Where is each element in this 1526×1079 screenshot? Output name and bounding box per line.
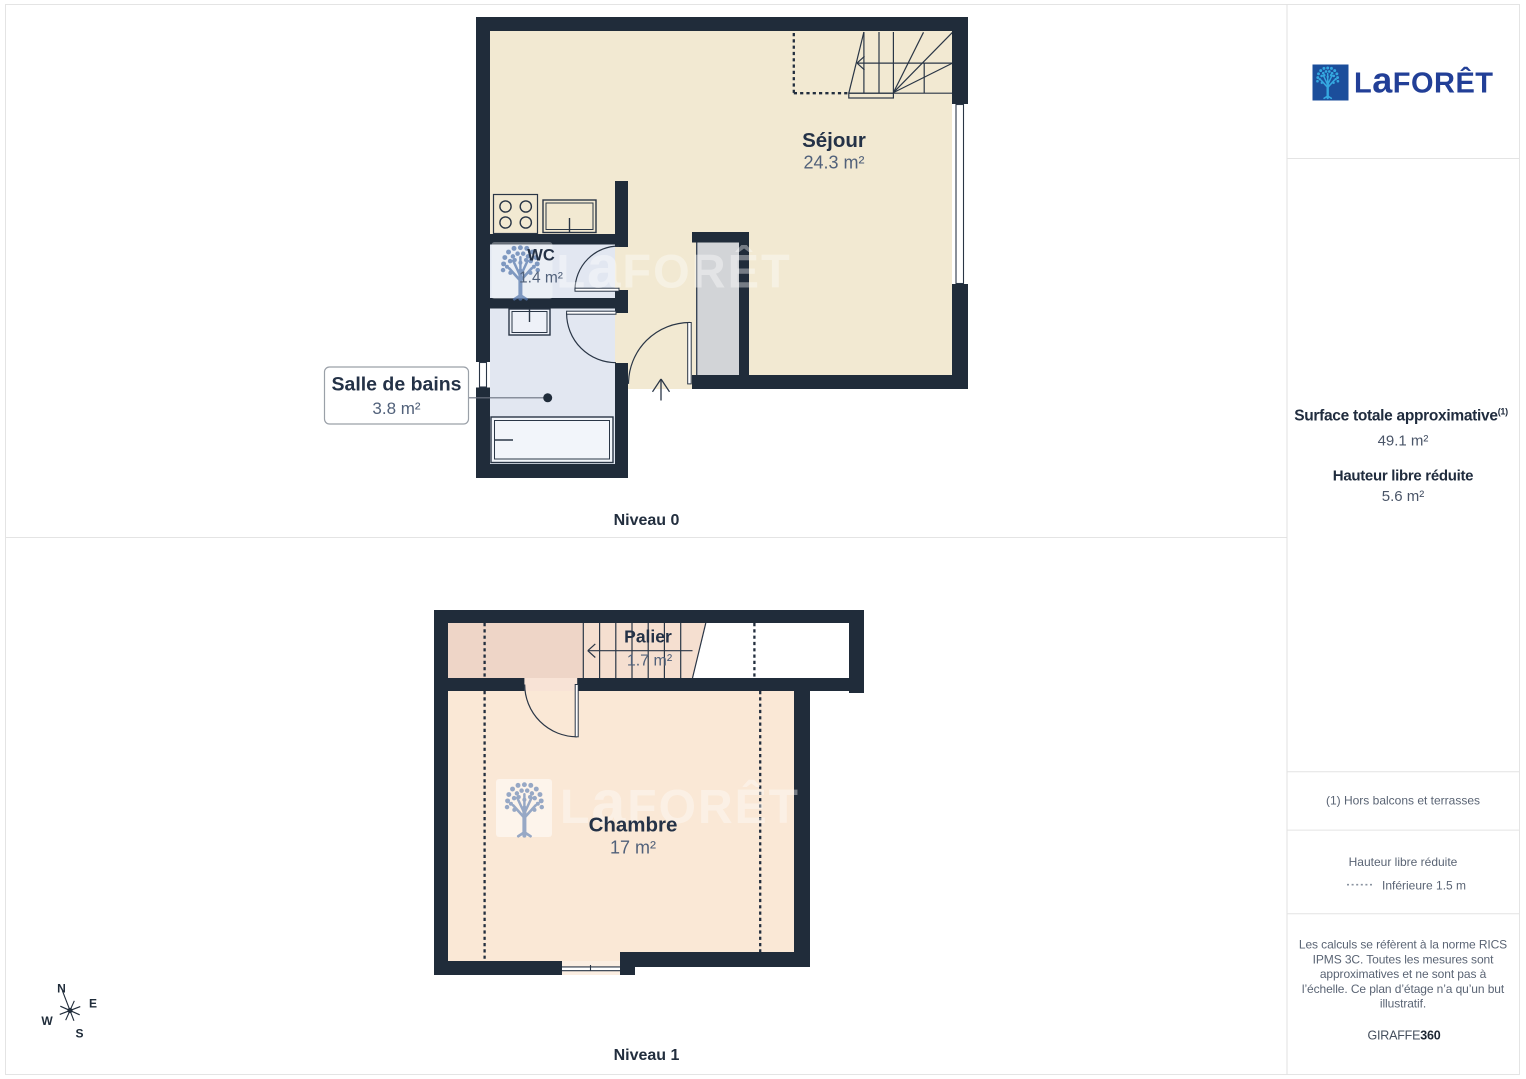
svg-text:Chambre: Chambre [589, 814, 678, 837]
svg-text:Surface totale approximative(1: Surface totale approximative(1) [1294, 407, 1508, 425]
svg-text:49.1 m²: 49.1 m² [1378, 433, 1429, 450]
svg-text:(1) Hors balcons et terrasses: (1) Hors balcons et terrasses [1326, 794, 1480, 808]
svg-text:Inférieure 1.5 m: Inférieure 1.5 m [1382, 879, 1466, 893]
svg-text:Séjour: Séjour [802, 129, 866, 152]
svg-text:17 m²: 17 m² [610, 838, 656, 858]
svg-text:N: N [57, 982, 66, 996]
svg-text:Hauteur libre réduite: Hauteur libre réduite [1349, 855, 1458, 869]
svg-text:Salle de bains: Salle de bains [331, 374, 461, 396]
svg-text:Niveau 1: Niveau 1 [614, 1047, 680, 1064]
svg-text:5.6 m²: 5.6 m² [1382, 488, 1425, 505]
svg-text:Les calculs se réfèrent à la n: Les calculs se réfèrent à la norme RICS [1299, 938, 1507, 952]
svg-text:W: W [41, 1014, 53, 1028]
svg-text:3.8 m²: 3.8 m² [372, 399, 421, 418]
svg-text:approximatives et ne sont pas: approximatives et ne sont pas à [1320, 967, 1487, 981]
svg-text:WC: WC [527, 247, 555, 265]
svg-text:1.7 m²: 1.7 m² [627, 653, 673, 670]
svg-text:Palier: Palier [624, 627, 672, 647]
svg-text:E: E [89, 997, 97, 1011]
svg-text:illustratif.: illustratif. [1380, 997, 1426, 1011]
svg-text:24.3 m²: 24.3 m² [803, 153, 864, 173]
svg-text:S: S [75, 1027, 83, 1041]
svg-text:LaFORÊT: LaFORÊT [556, 234, 791, 301]
svg-text:IPMS 3C. Toutes les mesures so: IPMS 3C. Toutes les mesures sont [1313, 952, 1494, 966]
svg-text:GIRAFFE360: GIRAFFE360 [1367, 1029, 1440, 1043]
svg-text:Hauteur libre réduite: Hauteur libre réduite [1333, 468, 1473, 485]
svg-text:1.4 m²: 1.4 m² [519, 270, 563, 287]
svg-text:Niveau 0: Niveau 0 [614, 512, 680, 529]
svg-text:l’échelle. Ce plan d’étage n’a: l’échelle. Ce plan d’étage n’a qu’un but [1302, 982, 1505, 996]
